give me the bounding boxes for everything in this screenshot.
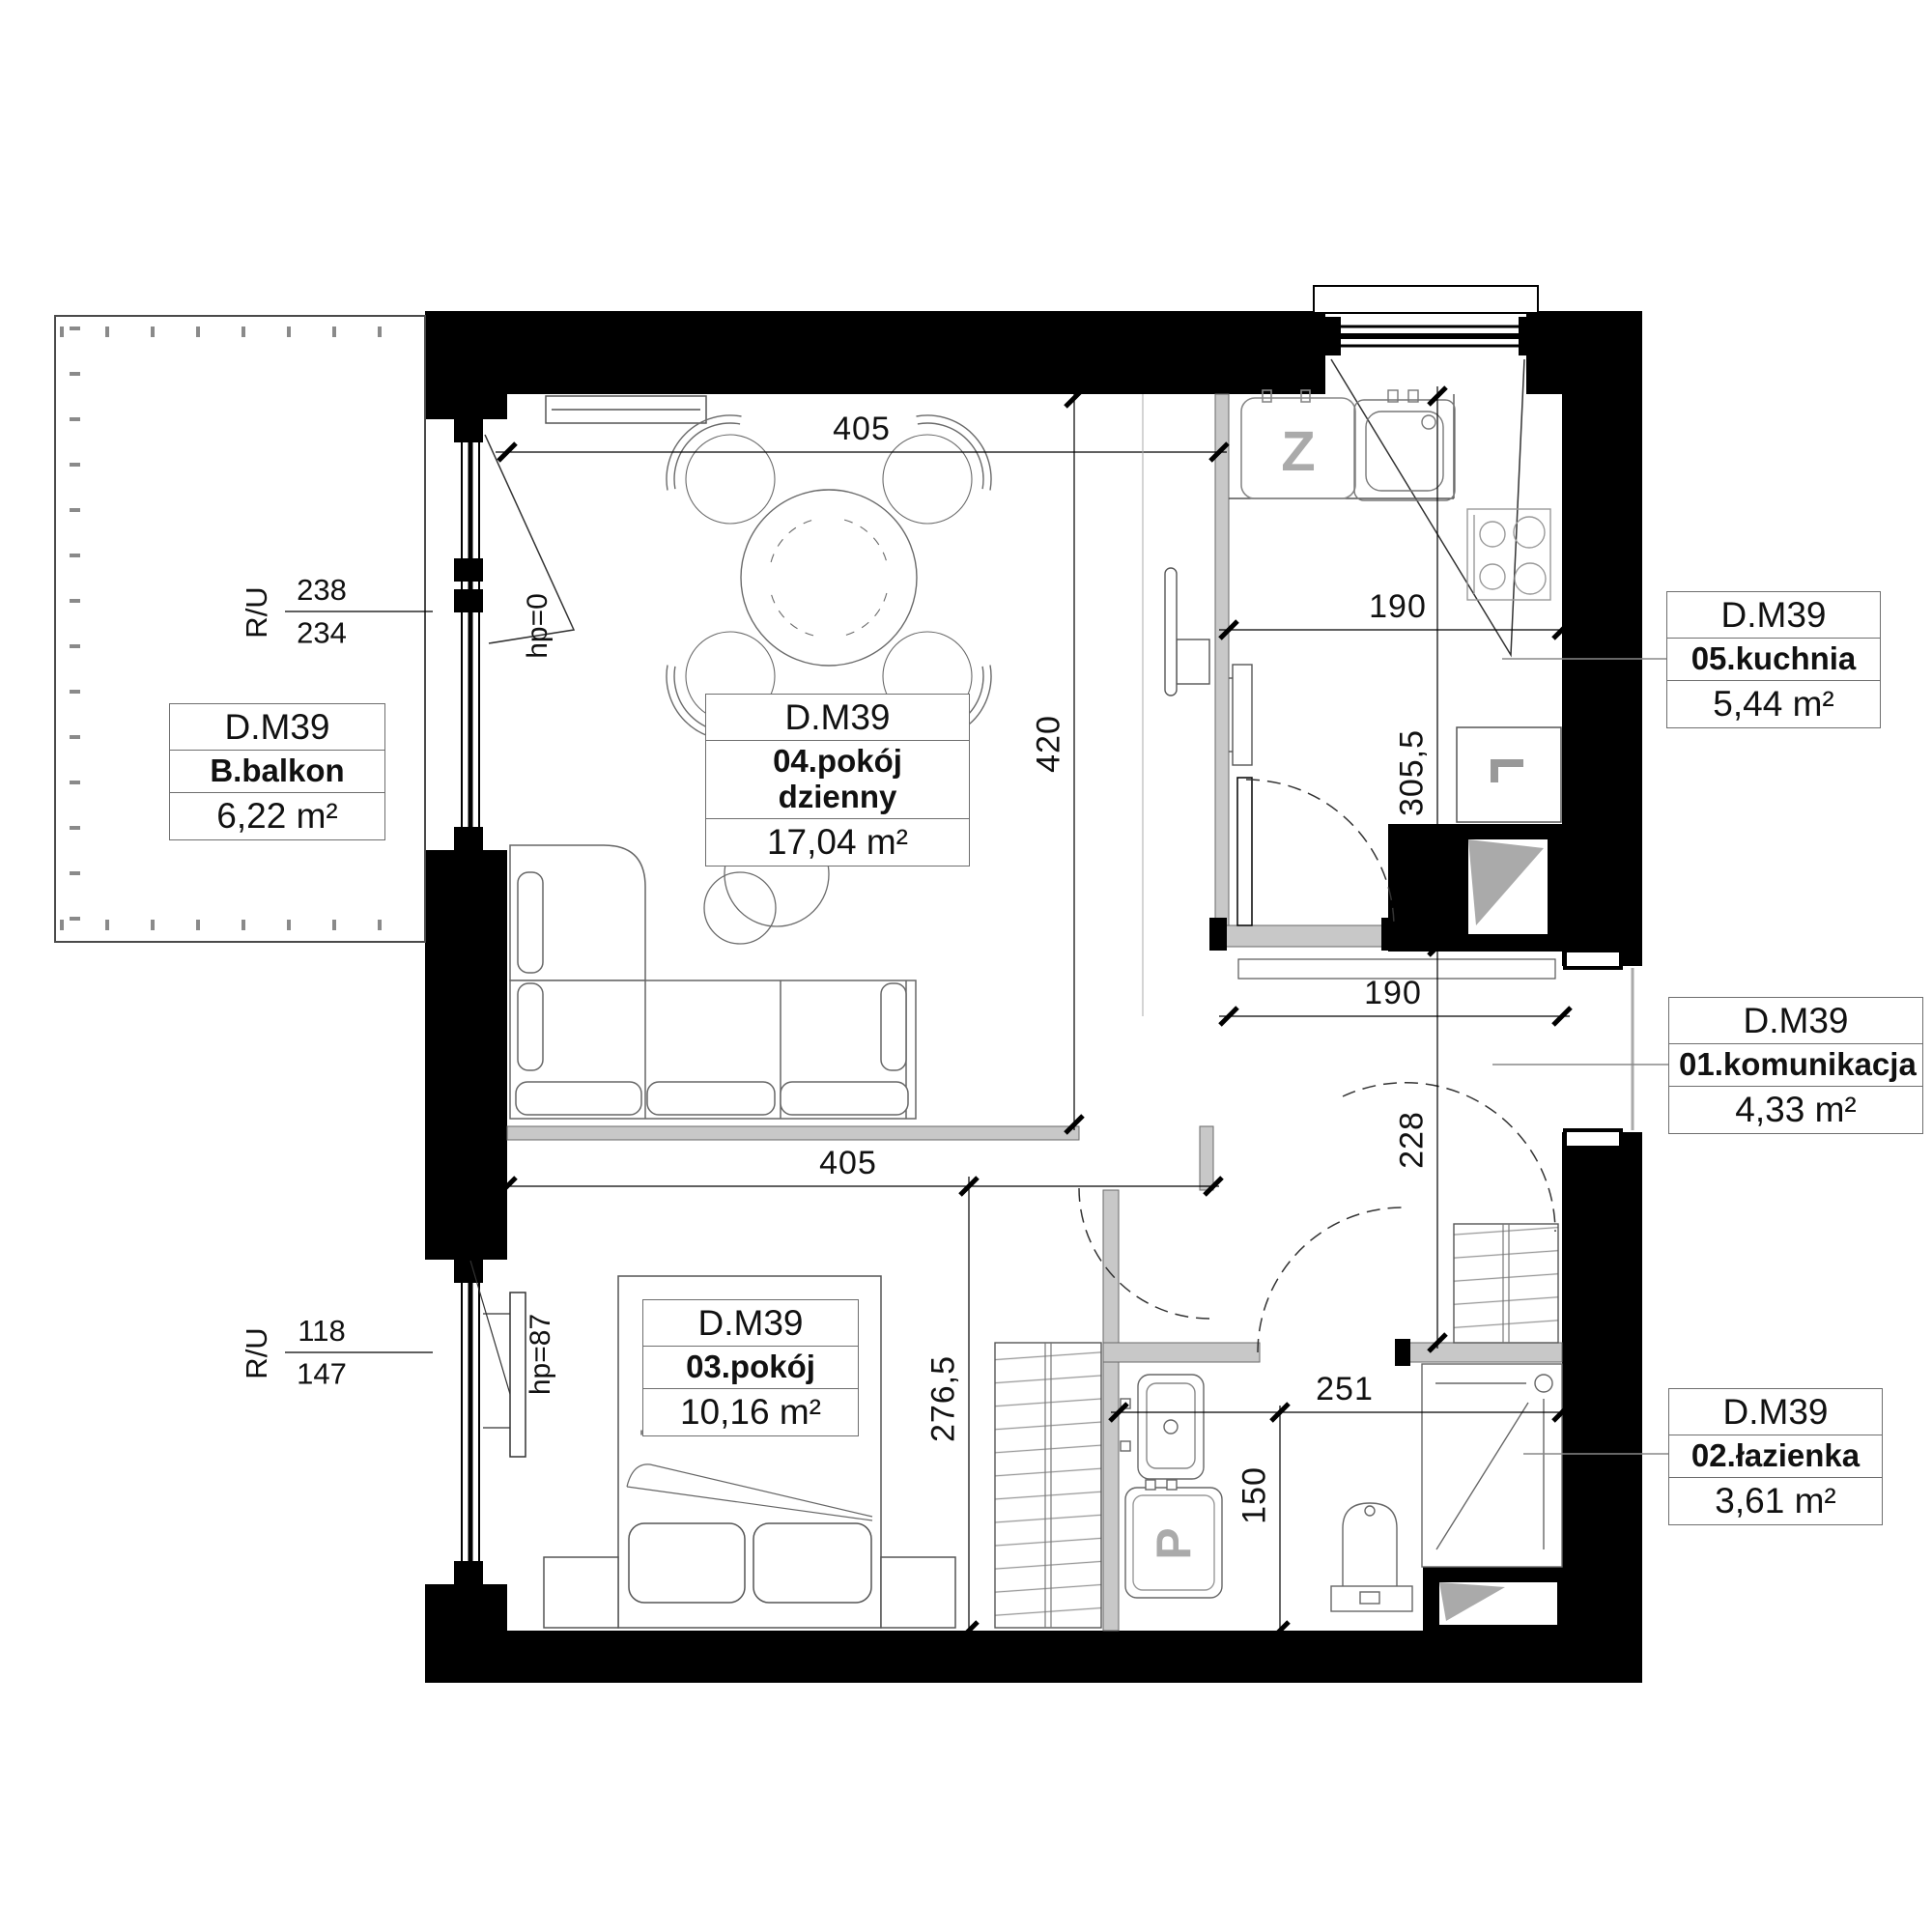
tv [1165,568,1177,696]
dim-living-width: 405 [833,411,891,448]
bed-pillow [753,1523,871,1603]
entrance-door-swing [1343,1083,1555,1232]
bed-pillow [629,1523,745,1603]
washing-machine-symbol: P [1147,1527,1201,1559]
tv-unit [1165,568,1209,696]
room-name: B.balkon [170,750,384,793]
chair-seat [686,435,775,524]
room-area: 17,04 m² [706,819,969,865]
wall-left-b [425,850,507,1260]
bedroom-window-sill-height: hp=87 [525,1314,557,1395]
tv-bracket [1177,639,1209,684]
balcony-ticks-bottom [60,920,421,930]
room-name: 03.pokój [643,1346,858,1389]
bedroom-window-width: 118 [298,1314,345,1349]
partition-bath-north-right [1403,1343,1562,1362]
sofa-cushion [647,1082,775,1115]
bedroom-door-swing [1079,1188,1209,1319]
room-area: 10,16 m² [643,1389,858,1435]
dim-hall-width: 190 [1364,975,1422,1012]
toilet [1331,1503,1412,1611]
floorplan-canvas: Z [0,0,1932,1932]
entrance-door [1565,951,1633,1148]
kitchen-door-leaf [1237,778,1252,925]
nightstand [881,1557,955,1628]
dim-hall-depth: 228 [1394,1111,1432,1169]
chair-backrest [917,415,992,491]
balcony-door-height: 234 [297,616,347,651]
cooktop [1467,509,1550,600]
kitchen-counter [1229,394,1454,498]
wall-bottom [425,1631,1642,1683]
wall-left-c [425,1584,507,1683]
partition-bath-north-left [1103,1343,1260,1362]
bathroom-door-swing [1258,1207,1403,1352]
kitchen-sink [1354,390,1455,500]
room-name: 05.kuchnia [1667,638,1880,681]
balcony-door-type: R/U [240,586,274,638]
room-area: 5,44 m² [1667,681,1880,726]
partition-bedroom-bath [1103,1190,1119,1631]
floorplan-drawing: Z [0,0,1932,1932]
sofa-cushion [781,1082,908,1115]
label-box-kitchen: D.M39 05.kuchnia 5,44 m² [1666,591,1881,728]
wall-right-lower [1562,1132,1642,1683]
wall-top-left [425,311,1325,394]
wall-right-upper [1562,311,1642,966]
room-name: 04.pokój dzienny [706,740,969,819]
dining-table-set [667,415,991,740]
room-area: 6,22 m² [170,793,384,838]
chair-backrest [674,423,740,489]
dining-table [741,490,917,666]
dim-bedroom-width: 405 [819,1145,877,1182]
duct-shaft-kitchen [1388,824,1562,952]
kitchen-door-swing [1246,780,1394,927]
shower [1422,1364,1562,1567]
dim-bathroom-depth: 150 [1236,1466,1274,1524]
room-area: 3,61 m² [1669,1478,1882,1523]
dim-bedroom-depth: 276,5 [925,1355,963,1442]
balcony-ticks-left [70,327,80,930]
dim-kitchen-width: 190 [1369,588,1427,626]
partition-kitchen-hall [1215,925,1391,947]
unit-id: D.M39 [643,1300,858,1346]
room-name: 01.komunikacja [1669,1043,1922,1087]
room-name: 02.łazienka [1669,1435,1882,1478]
living-radiator [546,396,706,423]
balcony-door-width: 238 [297,573,347,608]
kitchen-radiator [1229,665,1252,765]
balcony-ticks-top [60,327,421,337]
dim-living-depth: 420 [1031,715,1068,773]
corner-sofa [510,845,916,1119]
label-box-bedroom: D.M39 03.pokój 10,16 m² [642,1299,859,1436]
unit-id: D.M39 [706,695,969,740]
chair-seat [883,435,972,524]
bedroom-window-leaf [510,1293,526,1457]
washbasin [1121,1375,1204,1479]
duct-shaft-bathroom [1423,1567,1565,1631]
unit-id: D.M39 [170,704,384,750]
partition-hall-stub [1200,1126,1213,1190]
balcony-door [454,417,574,852]
unit-id: D.M39 [1669,998,1922,1043]
chair-backrest [667,415,742,491]
partition-living-bedroom [507,1126,1079,1140]
partition-living-kitchen [1215,394,1229,927]
room-area: 4,33 m² [1669,1087,1922,1132]
bedroom-window [454,1258,526,1586]
label-box-living: D.M39 04.pokój dzienny 17,04 m² [705,694,970,867]
bedroom-window-height: 147 [297,1357,347,1392]
unit-id: D.M39 [1669,1389,1882,1435]
sofa-pillow [881,983,906,1070]
label-box-bathroom: D.M39 02.łazienka 3,61 m² [1668,1388,1883,1525]
sofa-pillow [518,872,543,973]
bedroom-window-type: R/U [240,1327,274,1378]
dim-bathroom-width: 251 [1316,1371,1374,1408]
sofa-pillow [518,983,543,1070]
sofa-cushion [516,1082,641,1115]
label-box-balcony: D.M39 B.balkon 6,22 m² [169,703,385,840]
balcony-door-sill-height: hp=0 [522,593,554,659]
unit-id: D.M39 [1667,592,1880,638]
dim-kitchen-depth: 305,5 [1394,729,1432,816]
nightstand [544,1557,618,1628]
fridge [1457,727,1561,822]
chair-backrest [918,423,983,489]
bedroom-wardrobe [995,1343,1101,1628]
wall-left-a [425,311,507,419]
hall-wardrobe [1454,1224,1558,1343]
label-box-hall: D.M39 01.komunikacja 4,33 m² [1668,997,1923,1134]
dishwasher-symbol: Z [1281,420,1315,483]
